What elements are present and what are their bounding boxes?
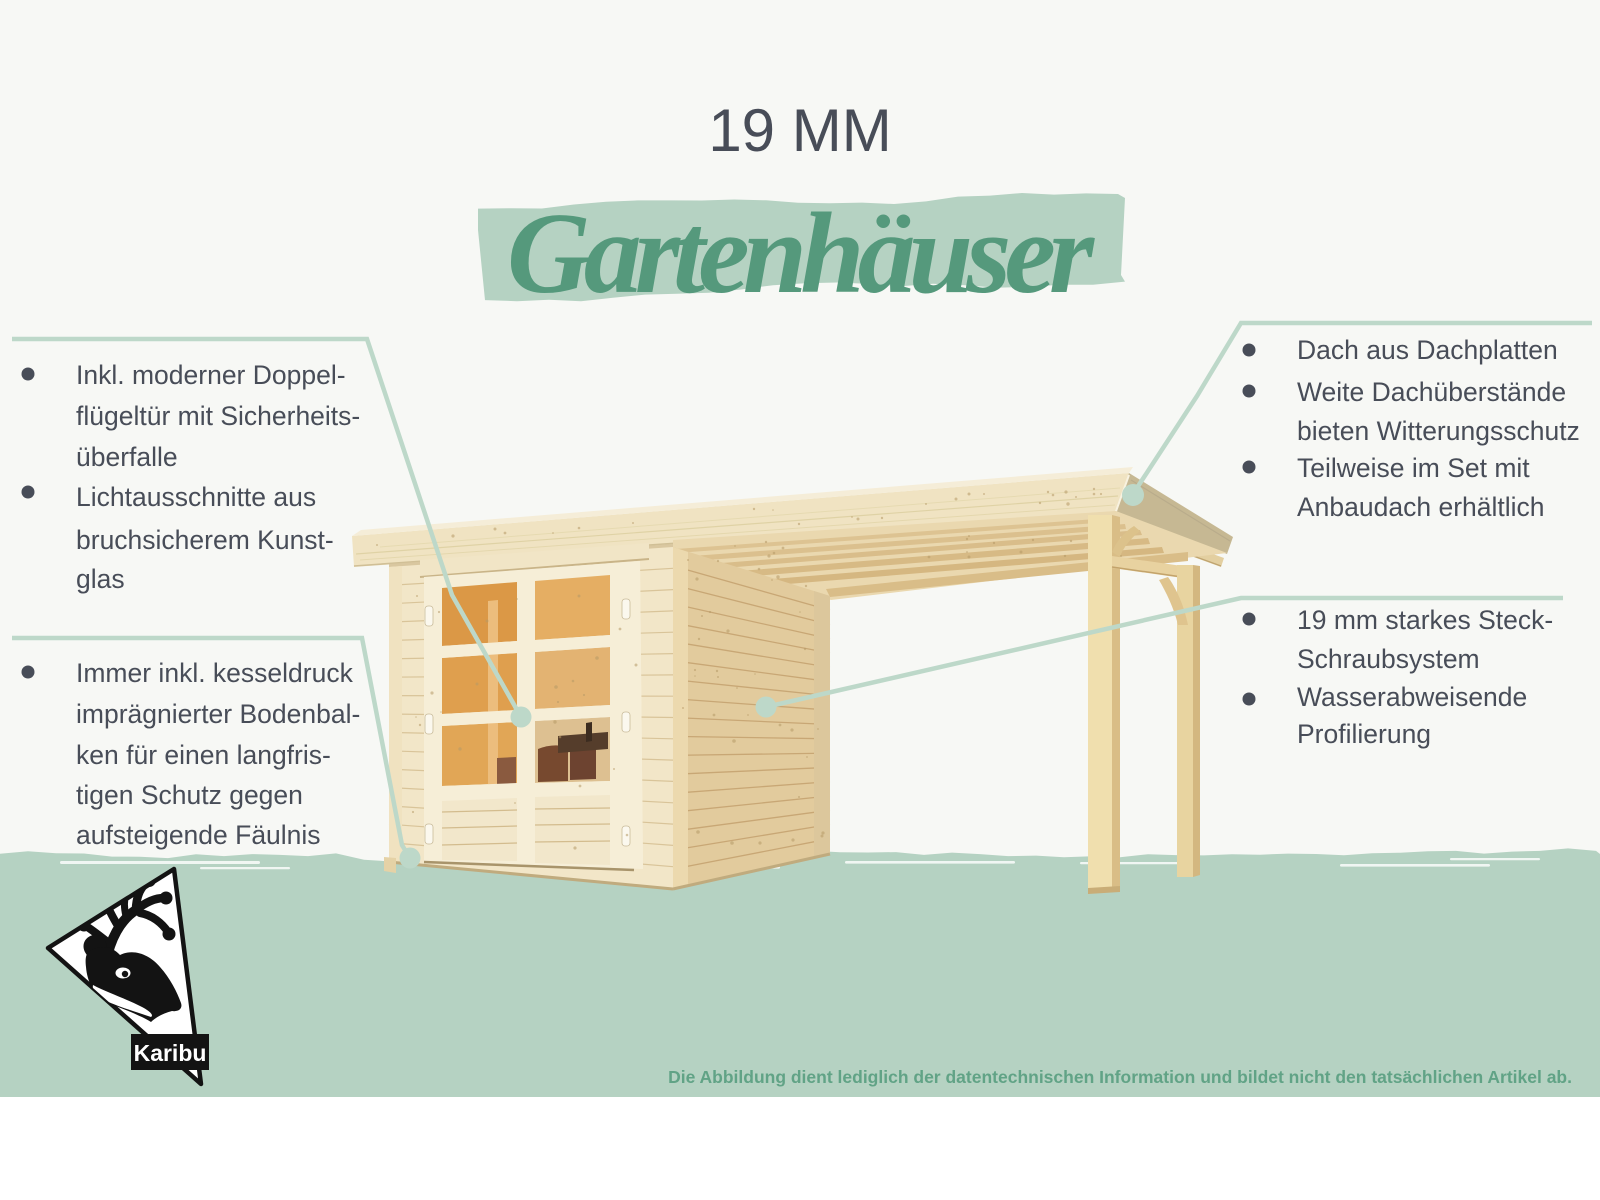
svg-text:flügeltür mit Sicherheits-: flügeltür mit Sicherheits- <box>76 401 360 431</box>
svg-text:19 mm starkes Steck-: 19 mm starkes Steck- <box>1297 605 1553 635</box>
svg-text:Schraubsystem: Schraubsystem <box>1297 644 1480 674</box>
svg-text:Wasserabweisende: Wasserabweisende <box>1297 682 1527 712</box>
svg-text:Die Abbildung dient lediglich: Die Abbildung dient lediglich der datent… <box>668 1067 1572 1087</box>
svg-text:ken für einen langfris-: ken für einen langfris- <box>76 740 331 770</box>
svg-text:Weite Dachüberstände: Weite Dachüberstände <box>1297 377 1566 407</box>
svg-text:imprägnierter Bodenbal-: imprägnierter Bodenbal- <box>76 699 360 729</box>
svg-text:Anbaudach erhältlich: Anbaudach erhältlich <box>1297 492 1545 522</box>
svg-text:Profilierung: Profilierung <box>1297 719 1431 749</box>
svg-text:Teilweise im Set mit: Teilweise im Set mit <box>1297 453 1530 483</box>
svg-text:bruchsicherem Kunst-: bruchsicherem Kunst- <box>76 525 334 555</box>
svg-text:aufsteigende Fäulnis: aufsteigende Fäulnis <box>76 820 321 850</box>
svg-text:tigen Schutz gegen: tigen Schutz gegen <box>76 780 303 810</box>
svg-text:Dach aus Dachplatten: Dach aus Dachplatten <box>1297 335 1558 365</box>
svg-text:glas: glas <box>76 564 125 594</box>
svg-text:Karibu: Karibu <box>134 1040 207 1066</box>
svg-text:Gartenhäuser: Gartenhäuser <box>507 190 1095 318</box>
svg-text:19 MM: 19 MM <box>708 97 891 164</box>
svg-text:Lichtausschnitte aus: Lichtausschnitte aus <box>76 482 316 512</box>
svg-text:Immer inkl. kesseldruck: Immer inkl. kesseldruck <box>76 658 354 688</box>
svg-text:Inkl. moderner Doppel-: Inkl. moderner Doppel- <box>76 360 346 390</box>
svg-text:überfalle: überfalle <box>76 442 178 472</box>
svg-text:bieten Witterungsschutz: bieten Witterungsschutz <box>1297 416 1580 446</box>
